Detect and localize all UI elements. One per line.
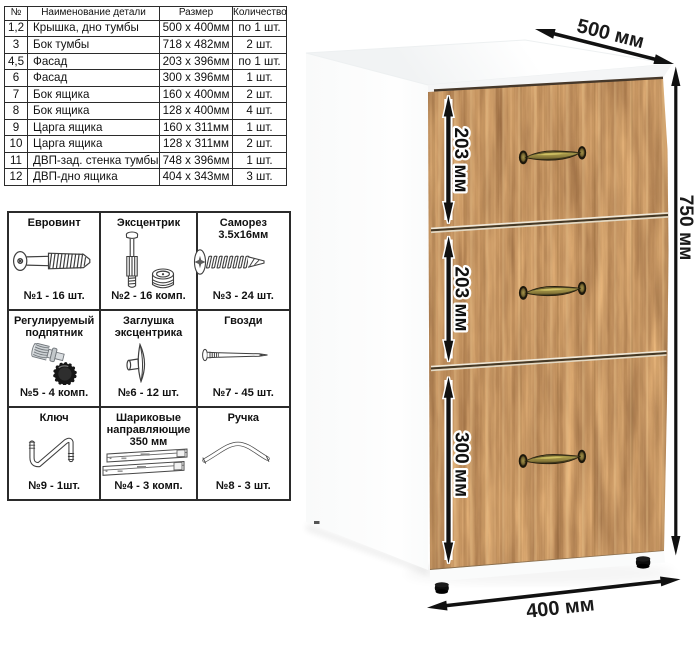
svg-text:203 мм: 203 мм <box>450 266 471 331</box>
svg-text:203 мм: 203 мм <box>450 127 471 192</box>
svg-text:300 мм: 300 мм <box>451 432 472 497</box>
svg-text:750 мм: 750 мм <box>675 195 696 261</box>
svg-text:400 мм: 400 мм <box>525 593 596 623</box>
